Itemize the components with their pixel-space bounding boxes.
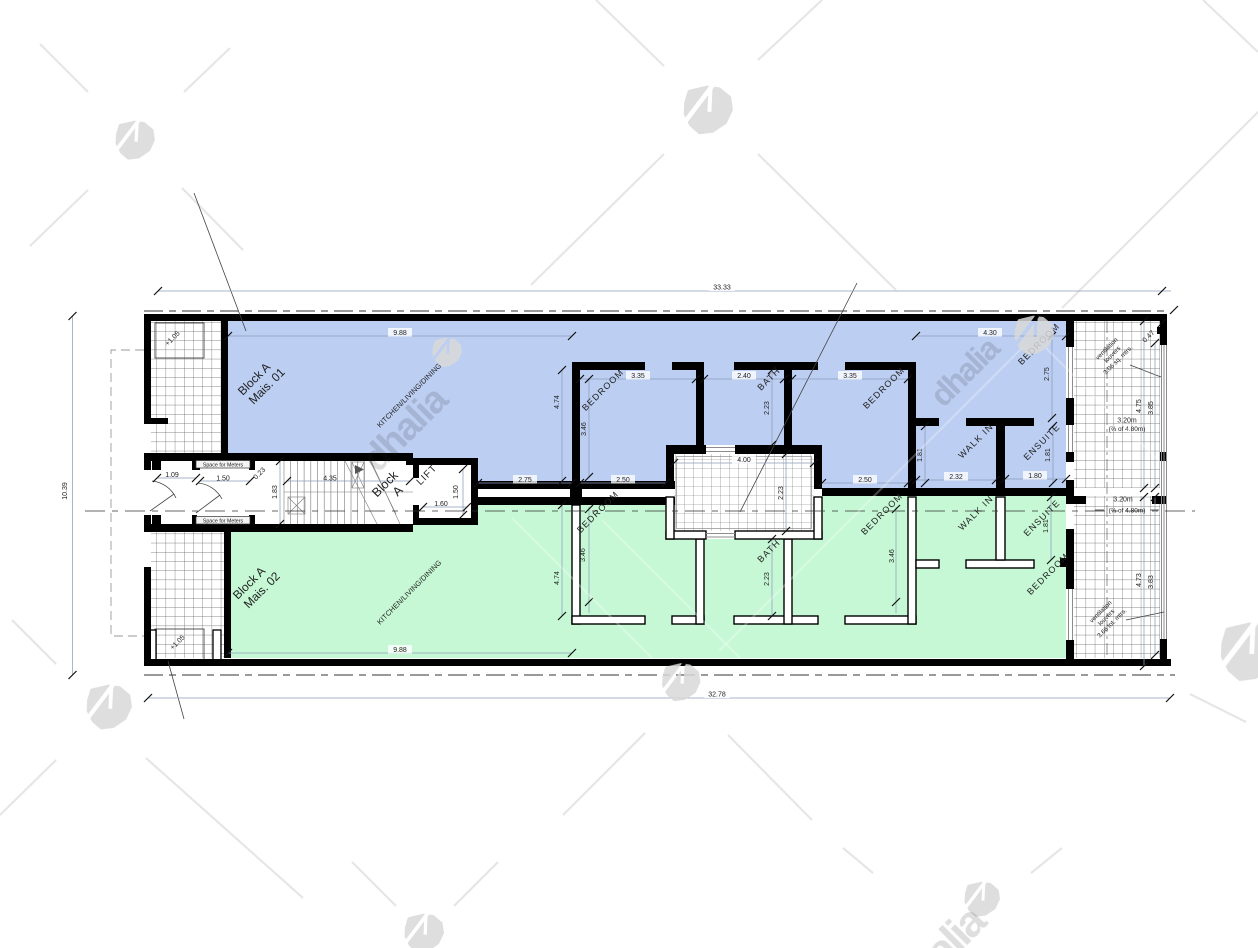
svg-text:4.75: 4.75 <box>1136 399 1143 413</box>
svg-text:1.50: 1.50 <box>216 476 230 483</box>
svg-text:1.83: 1.83 <box>272 485 279 499</box>
svg-text:9.88: 9.88 <box>393 330 407 337</box>
svg-text:4.73: 4.73 <box>1136 573 1143 587</box>
svg-text:1.09: 1.09 <box>165 472 179 479</box>
svg-text:Space for Meters: Space for Meters <box>203 462 244 468</box>
svg-text:4.30: 4.30 <box>983 330 997 337</box>
svg-text:1.80: 1.80 <box>1028 473 1042 480</box>
svg-text:Space for Meters: Space for Meters <box>203 518 244 524</box>
svg-text:2.23: 2.23 <box>764 401 771 415</box>
svg-text:1.60: 1.60 <box>434 501 448 508</box>
svg-text:2.75: 2.75 <box>1044 367 1051 381</box>
svg-text:9.88: 9.88 <box>393 647 407 654</box>
svg-text:33.33: 33.33 <box>713 285 731 292</box>
svg-text:1.81: 1.81 <box>1045 448 1052 462</box>
svg-text:3.46: 3.46 <box>889 549 896 563</box>
svg-text:2.50: 2.50 <box>616 477 630 484</box>
svg-text:(⅔ of 4.80m): (⅔ of 4.80m) <box>1109 508 1146 515</box>
svg-text:2.32: 2.32 <box>949 474 963 481</box>
svg-text:4.74: 4.74 <box>554 571 561 585</box>
svg-text:4.00: 4.00 <box>737 457 751 464</box>
svg-text:3.46: 3.46 <box>581 422 588 436</box>
svg-text:4.74: 4.74 <box>554 395 561 409</box>
svg-text:3.20m: 3.20m <box>1113 497 1133 504</box>
svg-text:2.50: 2.50 <box>858 477 872 484</box>
svg-text:10.39: 10.39 <box>62 482 69 500</box>
svg-text:4.35: 4.35 <box>323 476 337 483</box>
svg-text:3.46: 3.46 <box>580 548 587 562</box>
svg-text:32.78: 32.78 <box>708 692 726 699</box>
svg-text:1.50: 1.50 <box>453 485 460 499</box>
svg-text:2.75: 2.75 <box>518 477 532 484</box>
svg-text:3.35: 3.35 <box>631 373 645 380</box>
svg-text:2.23: 2.23 <box>764 572 771 586</box>
svg-text:2.23: 2.23 <box>778 486 785 500</box>
svg-text:3.35: 3.35 <box>843 373 857 380</box>
svg-text:3.85: 3.85 <box>1148 401 1155 415</box>
svg-text:3.83: 3.83 <box>1148 575 1155 589</box>
svg-text:2.40: 2.40 <box>737 373 751 380</box>
